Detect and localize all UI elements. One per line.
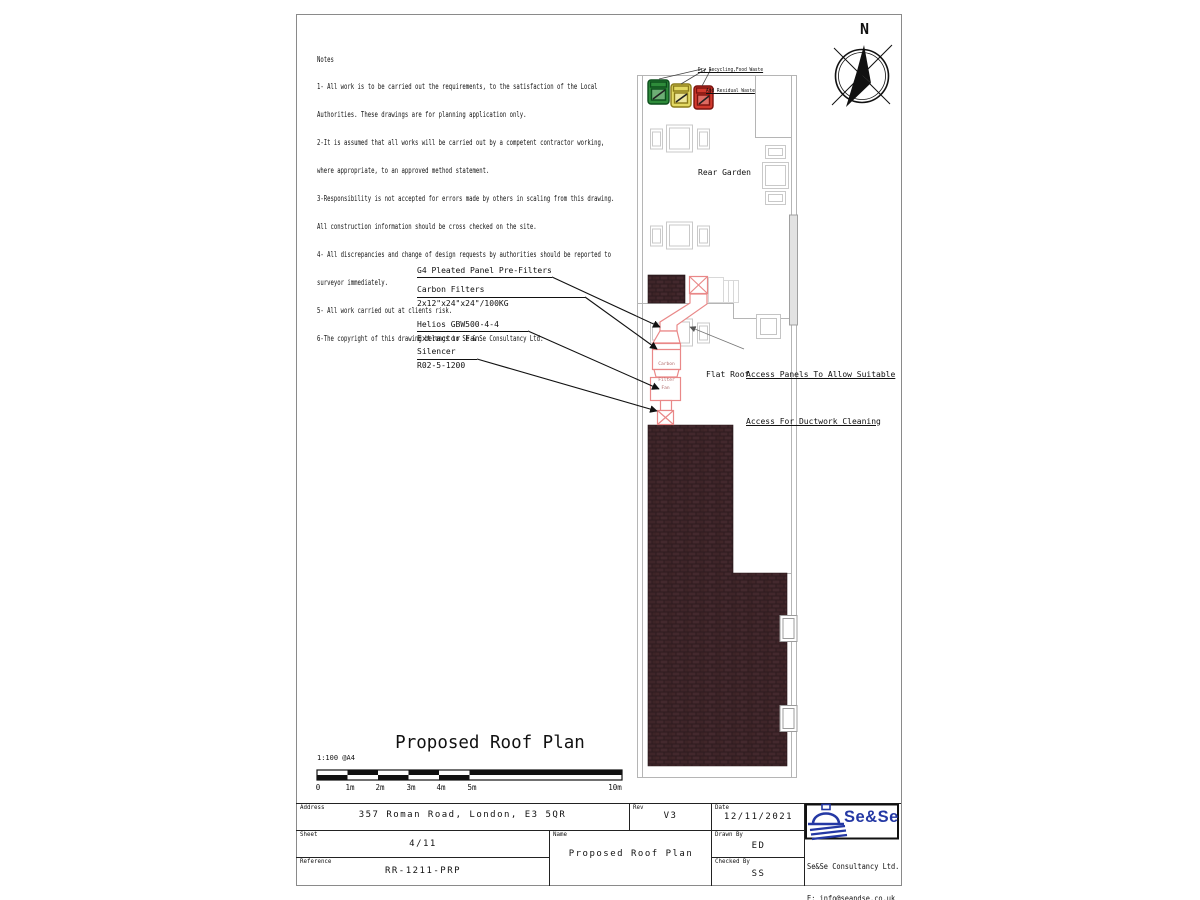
callout-carbon-filters-size: 2x12"x24"x24"/100KG	[417, 299, 509, 309]
garden-table-right	[763, 146, 789, 205]
scale-note: 1:100 @A4	[317, 754, 355, 762]
checked-by-label: Checked By	[715, 859, 750, 865]
north-label: N	[860, 20, 869, 38]
access-note: Access Panels To Allow Suitable Access F…	[746, 336, 895, 460]
scale-tick: 2m	[375, 783, 384, 792]
rooflight-outline	[757, 315, 781, 339]
bins-caption: Dry Recycling,Food Waste And Residual Wa…	[696, 53, 766, 109]
north-arrow-icon	[832, 45, 892, 107]
duct-outlet-bottom	[658, 411, 674, 425]
callout-silencer: Silencer	[417, 347, 456, 357]
name-label: Name	[553, 832, 567, 838]
scale-bar	[317, 770, 622, 780]
callout-fan-model: Helios GBW500-4-4	[417, 320, 499, 330]
bin-yellow-icon	[671, 84, 691, 107]
rear-garden-label: Rear Garden	[698, 166, 751, 180]
drawing-title: Proposed Roof Plan	[380, 733, 600, 753]
scale-tick: 1m	[345, 783, 354, 792]
scale-tick: 0	[316, 783, 321, 792]
scale-tick: 3m	[406, 783, 415, 792]
notes-title: Notes	[317, 55, 614, 64]
drawn-by-label: Drawn By	[715, 832, 743, 838]
scale-tick: 4m	[436, 783, 445, 792]
bin-green-icon	[648, 80, 669, 104]
notes-block: Notes 1- All work is to be carried out t…	[317, 36, 614, 361]
scale-tick: 5m	[467, 783, 476, 792]
date-value: 12/11/2021	[712, 812, 805, 822]
reference-value: RR-1211-PRP	[296, 866, 550, 876]
drawn-by-value: ED	[712, 841, 805, 851]
address-value: 357 Roman Road, London, E3 5QR	[296, 810, 629, 820]
fan-box-label: Fan	[651, 386, 680, 391]
roof-hatch-small	[648, 275, 685, 303]
flat-roof-label: Flat Roof	[706, 368, 749, 382]
reference-label: Reference	[300, 859, 331, 865]
callout-prefilters: G4 Pleated Panel Pre-Filters	[417, 266, 552, 276]
date-label: Date	[715, 805, 729, 811]
duct-outlet-top	[690, 277, 708, 294]
sheet-label: Sheet	[300, 832, 317, 838]
callout-carbon-filters: Carbon Filters	[417, 285, 484, 295]
rev-value: V3	[629, 811, 712, 821]
roof-hatch-main	[648, 425, 787, 766]
garden-gate	[790, 215, 798, 325]
name-value: Proposed Roof Plan	[550, 849, 712, 859]
company-contact: Se&Se Consultancy Ltd. E: info@seandse.c…	[807, 841, 899, 900]
callout-fan: Extractor Fan	[417, 334, 480, 344]
sheet-value: 4/11	[296, 839, 550, 849]
scale-tick: 10m	[608, 783, 622, 792]
stairs-outline	[709, 278, 739, 303]
logo-text: Se&Se	[844, 808, 899, 827]
callout-silencer-model: R02-5-1200	[417, 361, 465, 371]
checked-by-value: SS	[712, 869, 805, 879]
silencer-duct	[661, 401, 672, 411]
drawing-sheet: Notes 1- All work is to be carried out t…	[0, 0, 1200, 900]
